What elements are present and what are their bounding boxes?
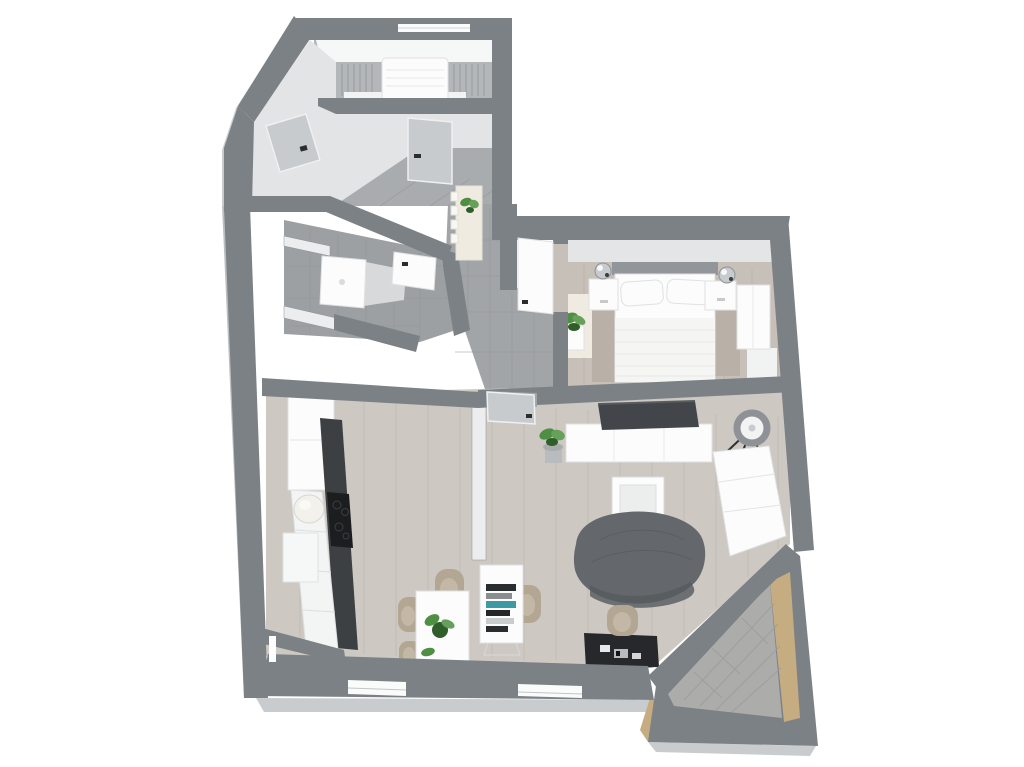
bathtub — [382, 58, 448, 102]
books — [486, 593, 512, 599]
desk-chair — [607, 605, 638, 636]
door-handle — [402, 262, 408, 266]
bedside-lamp-left — [595, 263, 611, 279]
nightstand-right — [705, 281, 736, 310]
cooktop — [327, 492, 353, 548]
bathroom-door-leaf — [408, 118, 452, 184]
lamp-shadow — [605, 273, 609, 277]
wall-bathroom-bottom — [318, 98, 500, 114]
nightstand-left-handle — [600, 300, 608, 303]
kitchen-divider-wall — [472, 392, 486, 560]
cooktop-surface — [327, 492, 353, 548]
bedroom-floor-strip-right — [712, 302, 740, 376]
floorplan-svg — [0, 0, 1024, 767]
exterior-face-bottom — [256, 698, 652, 712]
bathtub-body — [382, 58, 448, 102]
bed-headboard — [612, 262, 718, 275]
lamp-highlight — [597, 265, 603, 271]
tv-sideboard — [566, 424, 712, 462]
tv — [598, 401, 699, 430]
bedroom-door-opening — [553, 244, 568, 312]
books — [486, 626, 508, 632]
lamp-sphere — [719, 267, 735, 283]
wall-left — [224, 206, 268, 698]
bedroom-floor-light — [747, 348, 777, 378]
lamp-shadow — [729, 277, 733, 281]
hall-wardrobe — [451, 186, 482, 260]
bed-pillow-right — [666, 279, 709, 305]
lamp-sphere — [595, 263, 611, 279]
wardrobe-shelf — [451, 234, 458, 243]
desk-item — [632, 653, 641, 659]
kitchen-island-cabinet — [283, 533, 318, 582]
door-handle — [526, 414, 532, 418]
books — [486, 584, 516, 591]
sofa — [574, 512, 705, 608]
door-handle — [522, 300, 528, 304]
books — [486, 610, 510, 616]
lamp-highlight — [721, 269, 727, 275]
trash-bin-body — [294, 495, 324, 523]
wardrobe-shelf — [451, 220, 458, 229]
books — [486, 618, 514, 624]
floorplan-render — [0, 0, 1024, 767]
window-bottom-right — [518, 684, 582, 698]
door-handle — [414, 154, 421, 158]
bookshelf — [480, 565, 523, 655]
wardrobe-shelf — [451, 206, 458, 215]
wall-hallway-stub — [500, 204, 517, 290]
bedroom-door — [518, 238, 553, 314]
nightstand-right-handle — [717, 298, 725, 301]
plant-leaf — [466, 207, 474, 213]
desk-item — [616, 651, 620, 656]
dining-chair-cushion — [401, 606, 415, 626]
wardrobe-shelf — [451, 192, 458, 201]
bedroom-back-wall — [566, 240, 788, 262]
wall-entry-left — [224, 106, 254, 206]
desk-item — [600, 645, 610, 652]
hall-wardrobe-body — [456, 186, 482, 260]
plant-leaf — [568, 323, 580, 331]
trash-bin — [294, 495, 324, 523]
bedroom-floor-strip-left — [592, 300, 618, 382]
living-door-leaf — [487, 392, 535, 424]
trash-bin-highlight — [299, 500, 311, 510]
shower-door-leaf — [392, 252, 436, 290]
bed-pillow-left — [620, 280, 664, 307]
bedside-lamp-right — [719, 267, 735, 283]
bathroom-door — [408, 118, 452, 184]
floor-lamp-bulb — [749, 425, 756, 432]
plant-leaf — [546, 438, 558, 446]
bed-blanket — [615, 318, 715, 382]
nightstand-left — [589, 279, 618, 310]
desk-chair-cushion — [613, 612, 631, 632]
books — [486, 601, 516, 608]
shower-drain — [339, 279, 345, 285]
living-room-door — [487, 392, 535, 424]
wall-end-cap — [269, 636, 276, 662]
shower-room-door — [392, 252, 436, 290]
wall-bedroom-top — [492, 216, 790, 240]
